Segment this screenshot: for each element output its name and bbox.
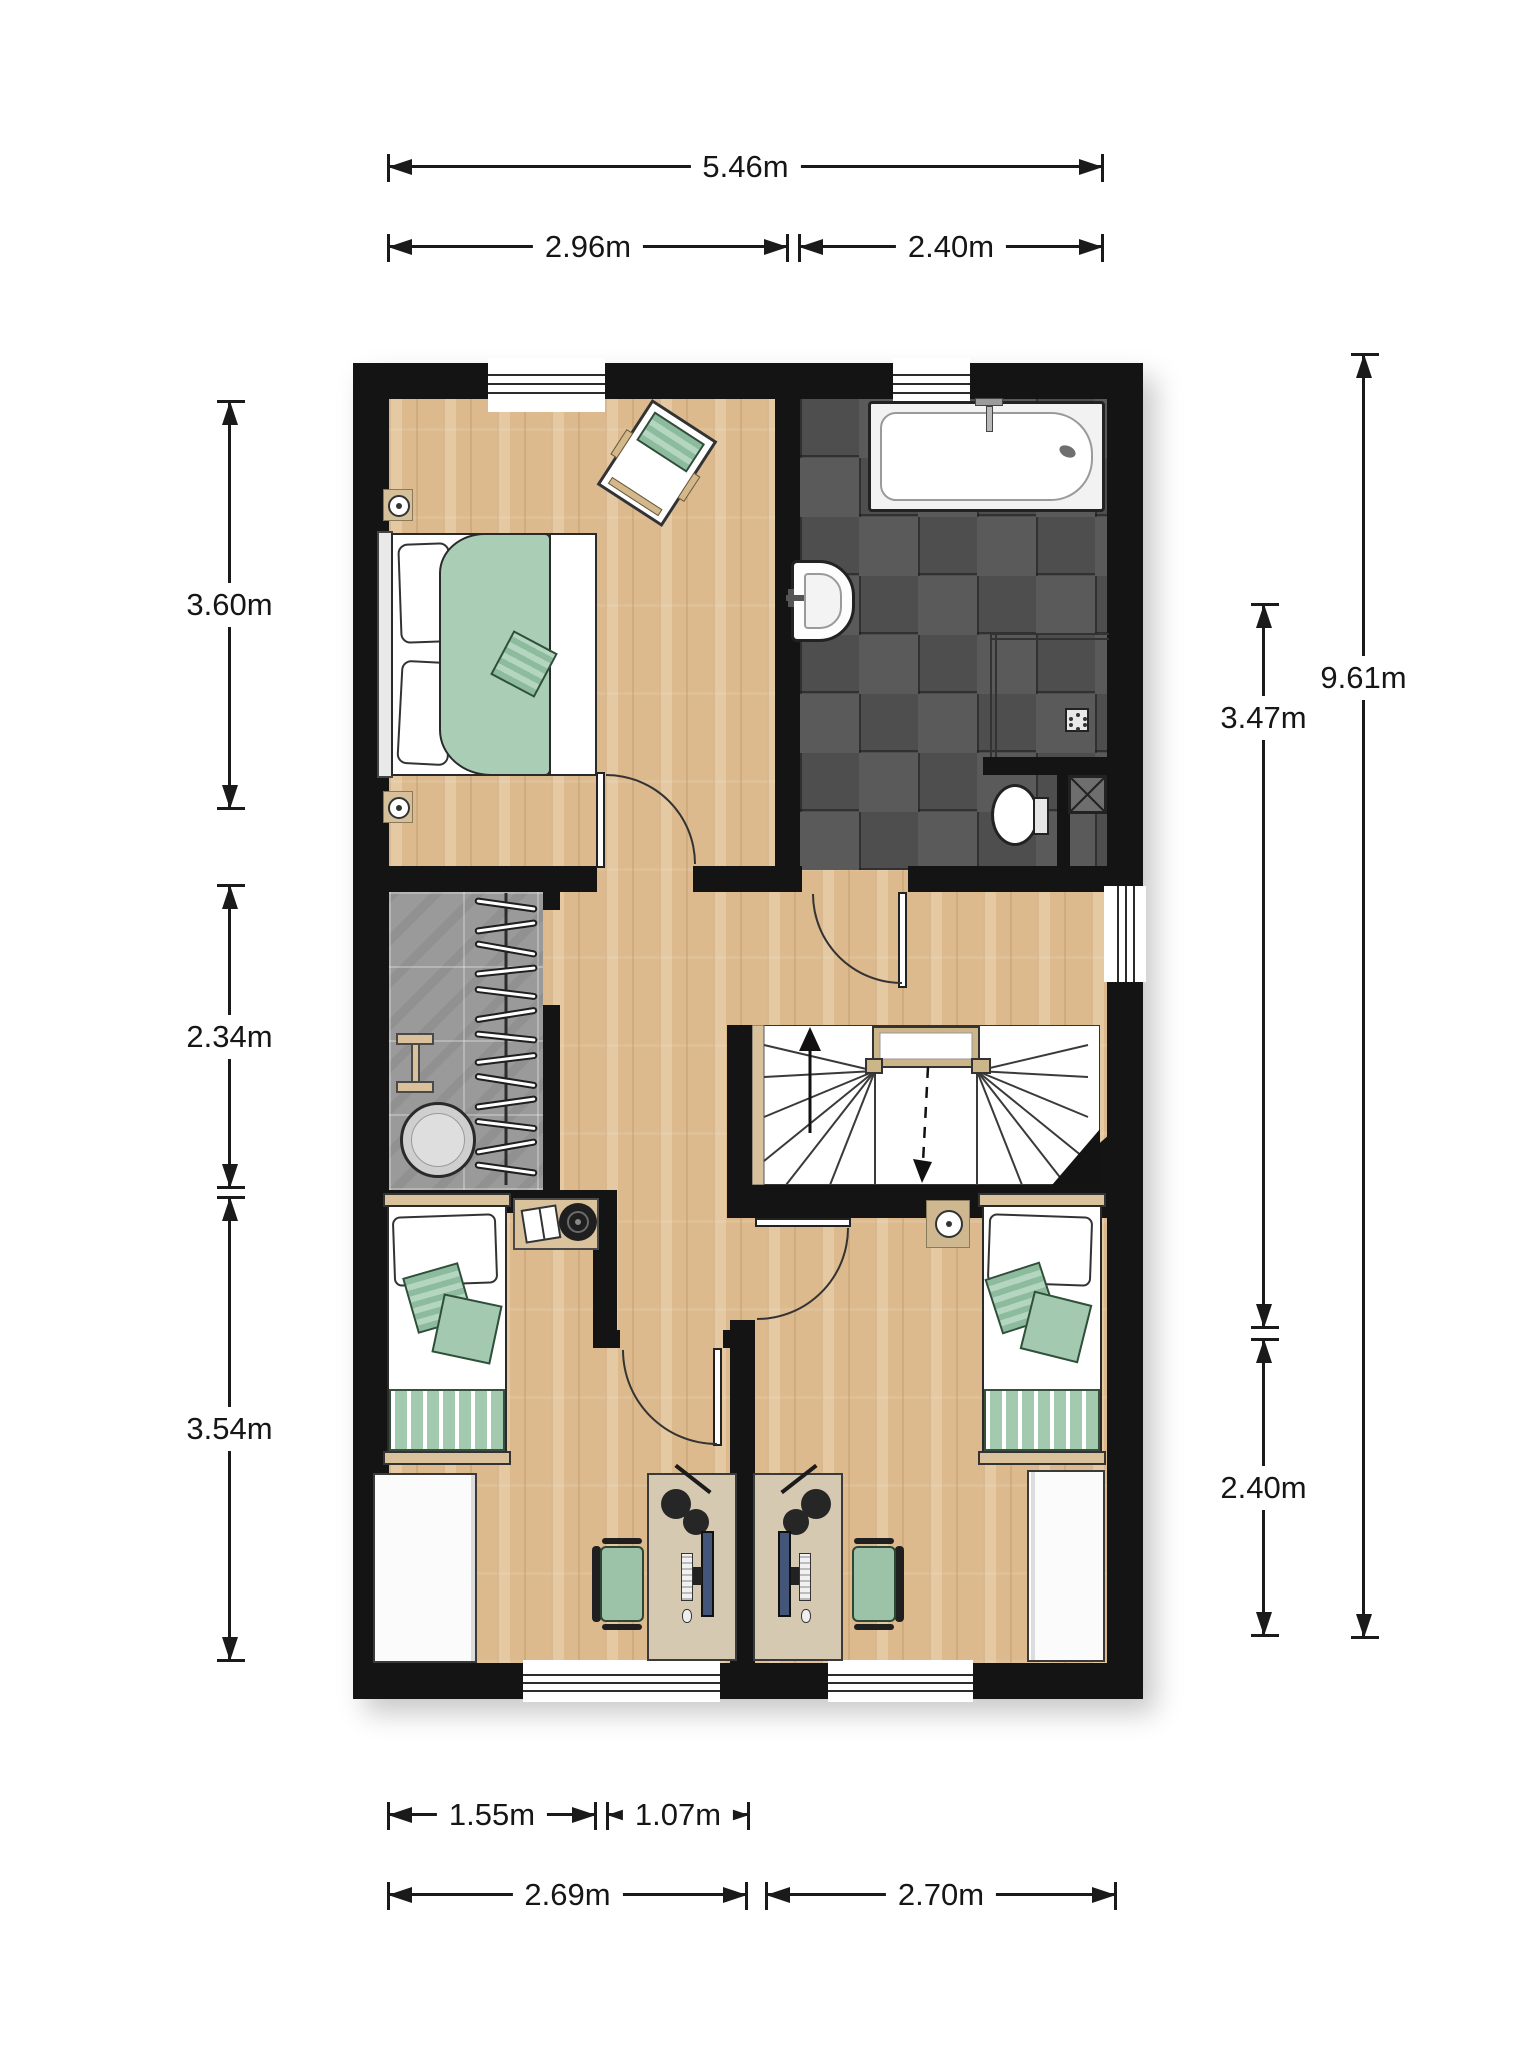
dimension-left-middle: 2.34m <box>228 886 231 1187</box>
mouse <box>801 1609 811 1623</box>
arrow-left-icon <box>799 239 823 255</box>
chair-armrest <box>602 1538 642 1544</box>
dimension-label: 9.61m <box>1312 656 1414 700</box>
dimension-tick <box>765 1882 768 1910</box>
dimension-tick <box>217 1186 245 1189</box>
wardrobe-line <box>1031 1472 1035 1660</box>
wall-bedroom2-top-left <box>593 1330 620 1348</box>
dimension-right-total: 9.61m <box>1362 355 1365 1637</box>
single-bed <box>383 1193 511 1465</box>
dimension-tick <box>217 884 245 887</box>
stairs <box>752 1025 1100 1185</box>
window-frame-line <box>488 392 605 394</box>
arrow-left-icon <box>388 1807 412 1823</box>
window-frame-line <box>893 383 970 385</box>
window-frame-line <box>488 374 605 376</box>
arrow-up-icon <box>222 885 238 909</box>
sink-basin <box>804 573 842 629</box>
chair-armrest <box>854 1538 894 1544</box>
wall-middle-band-right <box>908 866 1107 892</box>
bench-leg <box>411 1043 420 1083</box>
dimension-tick <box>387 154 390 182</box>
faucet-icon <box>788 589 794 607</box>
dimension-label: 3.47m <box>1212 696 1314 740</box>
dimension-tick <box>217 400 245 403</box>
dimension-tick <box>745 1882 748 1910</box>
dimension-label: 1.07m <box>623 1798 733 1832</box>
dimension-bottom-row1-left: 1.55m <box>389 1813 595 1816</box>
dimension-label: 2.70m <box>886 1878 996 1912</box>
toilet-tank <box>1033 797 1049 835</box>
bed-blanket <box>389 1389 505 1451</box>
monitor <box>778 1531 791 1617</box>
dimension-tick <box>1114 1882 1117 1910</box>
dimension-label: 1.55m <box>437 1798 547 1832</box>
window-frame-line <box>523 1690 720 1692</box>
chair-seat <box>852 1546 896 1622</box>
faucet-icon <box>975 398 1003 406</box>
dimension-tick <box>798 234 801 262</box>
dimension-tick <box>217 1196 245 1199</box>
dimension-bottom-row2-right: 2.70m <box>767 1893 1115 1896</box>
speaker <box>559 1203 597 1241</box>
arrow-down-icon <box>1256 1304 1272 1328</box>
arrow-down-icon <box>222 1637 238 1661</box>
window-frame-line <box>1133 886 1135 982</box>
socket-icon <box>396 503 402 509</box>
sink <box>791 560 855 642</box>
dimension-right-middle: 3.47m <box>1262 605 1265 1327</box>
dimension-tick <box>387 1802 390 1830</box>
dimension-label: 2.69m <box>512 1878 622 1912</box>
arrow-right-icon <box>1079 159 1103 175</box>
window-frame-line <box>828 1674 973 1676</box>
door-leaf-bedroom3 <box>755 1218 851 1227</box>
socket-icon <box>396 805 402 811</box>
monitor <box>701 1531 714 1617</box>
floor-plan: 5.46m 2.96m 2.40m 3.60m 2.34m 3.54m <box>0 0 1536 2048</box>
wall-bedroom1-bathroom <box>775 399 800 892</box>
wall-shower-bottom <box>983 757 1143 775</box>
monitor-stand <box>693 1567 702 1585</box>
toilet <box>991 784 1039 846</box>
dimension-tick <box>387 1882 390 1910</box>
window-frame-line <box>893 392 970 394</box>
keyboard <box>681 1553 693 1601</box>
arrow-up-icon <box>1356 354 1372 378</box>
window-frame-line <box>523 1674 720 1676</box>
dimension-left-upper: 3.60m <box>228 402 231 808</box>
bed-footboard <box>978 1451 1106 1465</box>
dimension-top-total: 5.46m <box>389 165 1102 168</box>
arrow-down-icon <box>222 785 238 809</box>
nightstand <box>513 1198 599 1250</box>
window-bedroom3 <box>828 1660 973 1702</box>
bathtub <box>868 401 1105 512</box>
door-leaf-bedroom1 <box>596 772 605 868</box>
dimension-tick <box>1251 1338 1279 1341</box>
window-frame-line <box>893 374 970 376</box>
arrow-up-icon <box>222 1197 238 1221</box>
dimension-right-lower: 2.40m <box>1262 1340 1265 1635</box>
dimension-label: 2.40m <box>1212 1466 1314 1510</box>
dimension-tick <box>387 234 390 262</box>
dimension-label: 3.60m <box>178 583 280 627</box>
arrow-left-icon <box>388 239 412 255</box>
window-frame-line <box>1117 886 1119 982</box>
chair-back <box>895 1546 904 1622</box>
desk <box>753 1473 843 1661</box>
arrow-up-icon <box>222 401 238 425</box>
dimension-tick <box>1251 1326 1279 1329</box>
dimension-tick <box>786 234 789 262</box>
basket-inner <box>411 1113 465 1167</box>
dimension-tick <box>1251 1634 1279 1637</box>
dimension-tick <box>217 807 245 810</box>
cushion <box>431 1293 502 1364</box>
window-frame-line <box>1125 886 1127 982</box>
shower-enclosure <box>990 633 997 757</box>
shower-drain <box>1065 708 1089 732</box>
shower-enclosure <box>990 633 1109 640</box>
dimension-top-left: 2.96m <box>389 245 787 248</box>
window-frame-line <box>523 1682 720 1684</box>
dimension-label: 2.40m <box>896 230 1006 264</box>
dimension-left-lower: 3.54m <box>228 1198 231 1660</box>
bed-footboard <box>383 1451 511 1465</box>
desk-chair <box>846 1538 904 1630</box>
mouse <box>682 1609 692 1623</box>
chair-armrest <box>854 1624 894 1630</box>
bench-bottom <box>396 1081 434 1093</box>
book <box>521 1204 562 1243</box>
dimension-bottom-row1-right: 1.07m <box>608 1813 748 1816</box>
dimension-tick <box>217 1659 245 1662</box>
dimension-bottom-row2-left: 2.69m <box>389 1893 746 1896</box>
speaker-dot <box>575 1219 581 1225</box>
double-bed <box>377 531 599 778</box>
window-hall-right <box>1104 886 1146 982</box>
dimension-tick <box>1101 154 1104 182</box>
keyboard <box>799 1553 811 1601</box>
arrow-right-icon <box>764 239 788 255</box>
window-frame-line <box>488 383 605 385</box>
arrow-right-icon <box>1092 1887 1116 1903</box>
chair-seat <box>600 1546 644 1622</box>
wardrobe-line <box>471 1475 475 1661</box>
shaft-x-icon <box>1068 775 1107 814</box>
wall-closet-right-upper <box>543 892 560 910</box>
drain-holes <box>1076 713 1080 717</box>
dimension-top-right: 2.40m <box>800 245 1102 248</box>
wall-middle-band-center <box>693 866 802 892</box>
arrow-down-icon <box>222 1164 238 1188</box>
bed-blanket <box>984 1389 1100 1451</box>
dimension-tick <box>1351 1636 1379 1639</box>
dimension-tick <box>747 1802 750 1830</box>
bench <box>396 1033 434 1093</box>
arrow-left-icon <box>766 1887 790 1903</box>
laundry-basket <box>400 1102 476 1178</box>
chair-armrest <box>602 1624 642 1630</box>
arrow-right-icon <box>572 1807 596 1823</box>
single-bed <box>978 1193 1106 1465</box>
desk <box>647 1473 737 1661</box>
dimension-label: 2.34m <box>178 1015 280 1059</box>
socket-icon <box>946 1221 952 1227</box>
book-spine <box>539 1209 546 1239</box>
arrow-right-icon <box>723 1887 747 1903</box>
dimension-tick <box>1351 353 1379 356</box>
wall-closet-right-lower <box>543 1005 560 1213</box>
dimension-label: 5.46m <box>690 150 800 184</box>
desk-chair <box>592 1538 650 1630</box>
dimension-tick <box>594 1802 597 1830</box>
faucet-icon <box>986 406 993 432</box>
window-bedroom2 <box>523 1660 720 1702</box>
arrow-up-icon <box>1256 1339 1272 1363</box>
dimension-tick <box>606 1802 609 1830</box>
arrow-down-icon <box>1356 1614 1372 1638</box>
wall-stairs-left <box>727 1025 752 1185</box>
window-frame-line <box>828 1690 973 1692</box>
dimension-tick <box>1251 603 1279 606</box>
wardrobe <box>373 1473 477 1663</box>
dimension-label: 3.54m <box>178 1407 280 1451</box>
window-bedroom1 <box>488 358 605 412</box>
arrow-up-icon <box>1256 604 1272 628</box>
wall-middle-band-left <box>353 866 597 892</box>
dimension-tick <box>1101 234 1104 262</box>
arrow-right-icon <box>1079 239 1103 255</box>
arrow-left-icon <box>388 159 412 175</box>
window-frame-line <box>828 1682 973 1684</box>
arrow-down-icon <box>1256 1612 1272 1636</box>
arrow-left-icon <box>388 1887 412 1903</box>
dimension-label: 2.96m <box>533 230 643 264</box>
clothes-rail <box>470 893 542 1185</box>
wardrobe <box>1027 1470 1105 1662</box>
